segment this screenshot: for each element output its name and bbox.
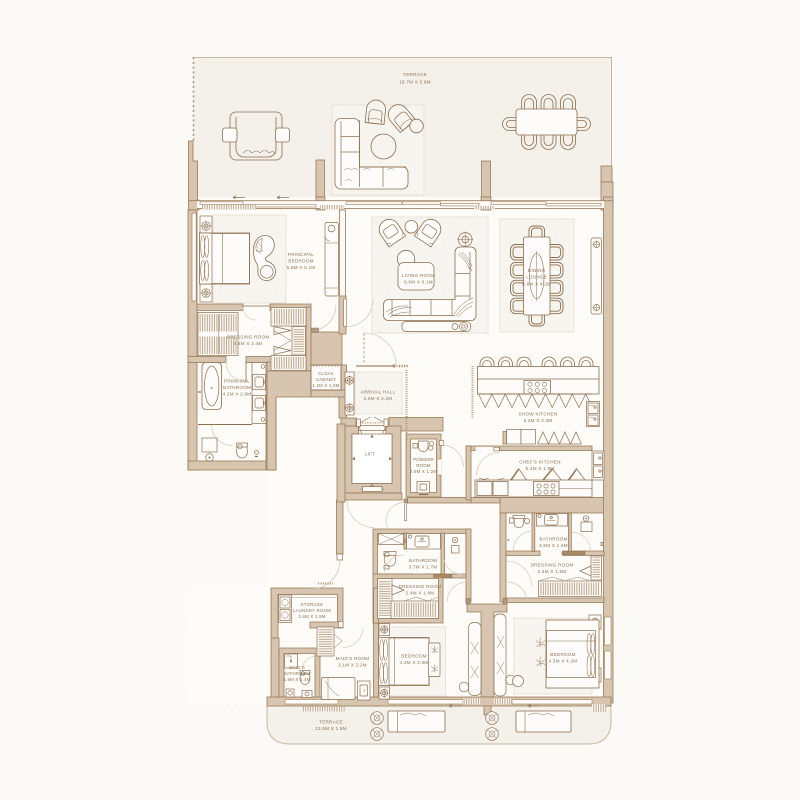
svg-text:4.4M X 2.4M: 4.4M X 2.4M [234,341,263,346]
svg-text:3.7M X 1.7M: 3.7M X 1.7M [409,565,438,570]
svg-text:ROOM: ROOM [416,463,431,468]
svg-text:PRINCIPAL: PRINCIPAL [224,379,250,384]
svg-text:TERRACE: TERRACE [319,720,343,725]
svg-text:BEDROOM: BEDROOM [401,654,427,659]
svg-text:18.7M X 5.9M: 18.7M X 5.9M [399,80,431,85]
svg-text:DRESSING ROOM: DRESSING ROOM [399,584,442,589]
svg-text:PRINCIPAL: PRINCIPAL [288,252,314,257]
svg-text:4.5M X 4.2M: 4.5M X 4.2M [549,659,578,664]
svg-text:BATHROOM: BATHROOM [284,671,311,676]
svg-text:2.4M X 1.6M: 2.4M X 1.6M [406,591,435,596]
svg-text:3.1M X 2.2M: 3.1M X 2.2M [338,663,367,668]
svg-text:DRESSING ROOM: DRESSING ROOM [531,563,574,568]
svg-text:BATHROOM: BATHROOM [223,385,251,390]
svg-text:4.4M X 3.8M: 4.4M X 3.8M [400,660,429,665]
svg-text:4.2M X 2.8M: 4.2M X 2.8M [223,392,252,397]
svg-text:CHEF'S KITCHEN: CHEF'S KITCHEN [519,460,560,465]
svg-text:LIVING ROOM: LIVING ROOM [402,273,435,278]
svg-text:1.9M X 1.4M: 1.9M X 1.4M [283,677,310,682]
svg-text:DINING: DINING [528,268,546,273]
svg-text:MAID'S ROOM: MAID'S ROOM [336,656,370,661]
svg-text:SHOW KITCHEN: SHOW KITCHEN [519,412,558,417]
svg-text:STORAGE: STORAGE [301,602,324,607]
svg-text:ARRIVAL HALL: ARRIVAL HALL [361,390,396,395]
svg-text:13.5M X 1.5M: 13.5M X 1.5M [315,726,347,731]
svg-text:CLOAK: CLOAK [318,371,334,376]
svg-text:LIFT: LIFT [365,452,375,457]
svg-text:2.6M X 1.9M: 2.6M X 1.9M [298,614,325,619]
svg-text:2.5M X 1.2M: 2.5M X 1.2M [410,469,437,474]
svg-text:TERRACE: TERRACE [403,72,427,77]
svg-text:DRESSING ROOM: DRESSING ROOM [227,335,270,340]
svg-text:BATHROOM: BATHROOM [409,558,437,563]
svg-text:BATHROOM: BATHROOM [539,537,567,542]
svg-text:6.6M X 6.1M: 6.6M X 6.1M [404,280,433,285]
svg-text:LAUNDRY ROOM: LAUNDRY ROOM [293,608,331,613]
svg-text:MAID'S: MAID'S [289,665,305,670]
svg-text:CABINET: CABINET [316,377,336,382]
svg-text:6.6M X 4.2M: 6.6M X 4.2M [522,282,551,287]
svg-text:5.8M X 5.1M: 5.8M X 5.1M [287,265,316,270]
svg-text:LOUNGE: LOUNGE [526,275,547,280]
svg-text:1.2M X 1.0M: 1.2M X 1.0M [312,383,339,388]
svg-text:BEDROOM: BEDROOM [288,259,314,264]
svg-text:2.6M X 2.2M: 2.6M X 2.2M [364,396,393,401]
svg-text:5.4M X 1.9M: 5.4M X 1.9M [526,466,555,471]
svg-text:2.4M X 1.6M: 2.4M X 1.6M [538,569,567,574]
svg-text:BEDROOM: BEDROOM [550,652,576,657]
svg-text:POWDER: POWDER [413,457,434,462]
svg-text:3.6M X 1.6M: 3.6M X 1.6M [539,543,568,548]
svg-text:5.2M X 3.3M: 5.2M X 3.3M [524,418,553,423]
